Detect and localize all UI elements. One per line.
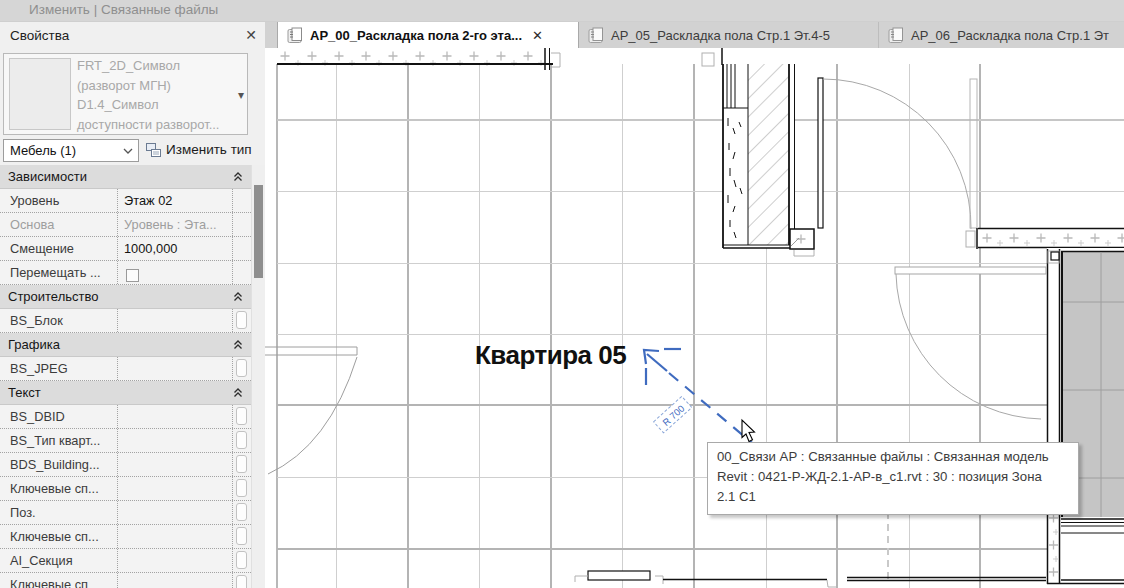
property-row: BS_JPEG: [0, 357, 251, 381]
property-label: AI_Секция: [0, 549, 117, 572]
edit-type-icon: [145, 142, 162, 158]
view-tab-label: АР_00_Раскладка пола 2-го эта...: [310, 28, 522, 43]
type-preview-image: [9, 58, 71, 130]
property-label: BS_DBID: [0, 405, 117, 428]
view-tab[interactable]: АР_06_Раскладка пола Стр.1 Эт: [879, 22, 1124, 48]
section-header[interactable]: Текст: [0, 381, 251, 405]
property-row: BS_DBID: [0, 405, 251, 429]
property-value[interactable]: [117, 357, 232, 380]
property-assoc-cell: [232, 237, 251, 260]
property-label: Ключевые сп...: [0, 525, 117, 548]
collapse-icon[interactable]: [233, 172, 243, 182]
collapse-icon[interactable]: [233, 292, 243, 302]
properties-grid: Зависимости Уровень Этаж 02 Основа Урове…: [0, 165, 251, 588]
ribbon-context-label: Изменить | Связанные файлы: [29, 2, 218, 17]
property-value[interactable]: [117, 429, 232, 452]
door-bottom-left: [265, 347, 357, 474]
category-filter-combo[interactable]: Мебель (1): [3, 139, 139, 162]
type-name-line: D1.4_Символ: [77, 95, 231, 115]
property-label: BDS_Building...: [0, 453, 117, 476]
door-jamb: [966, 231, 975, 247]
door-leaf: [818, 78, 823, 228]
property-row: Смещение 1000,000: [0, 237, 251, 261]
section-label: Графика: [8, 337, 60, 352]
property-value: Уровень : Эта...: [117, 213, 232, 236]
property-label: Смещение: [0, 237, 117, 260]
section-header[interactable]: Зависимости: [0, 165, 251, 189]
property-row: AI_Секция: [0, 549, 251, 573]
property-label: BS_JPEG: [0, 357, 117, 380]
top-wall: [277, 48, 722, 70]
property-assoc-cell: [232, 429, 251, 452]
property-row: Ключевые сп...: [0, 477, 251, 501]
associate-param-button[interactable]: [236, 407, 247, 425]
property-label: BS_Тип кварт...: [0, 429, 117, 452]
property-assoc-cell: [232, 405, 251, 428]
tooltip-line: 2.1 С1: [717, 487, 1069, 507]
type-selector[interactable]: FRT_2D_Символ (разворот МГН) D1.4_Символ…: [3, 53, 248, 135]
property-assoc-cell: [232, 501, 251, 524]
associate-param-button[interactable]: [236, 359, 247, 377]
door-leaf: [895, 267, 1046, 274]
property-assoc-cell: [232, 453, 251, 476]
plan-view-icon: [588, 27, 605, 44]
property-assoc-cell: [232, 477, 251, 500]
property-label: Уровень: [0, 189, 117, 212]
property-assoc-cell: [232, 549, 251, 572]
close-icon[interactable]: ✕: [245, 27, 257, 43]
collapse-icon[interactable]: [233, 388, 243, 398]
property-assoc-cell: [232, 213, 251, 236]
right-wall-band: [978, 229, 1124, 248]
chevron-down-icon[interactable]: ▾: [238, 88, 244, 102]
property-label: Поз.: [0, 501, 117, 524]
close-icon[interactable]: ✕: [532, 28, 543, 43]
bottom-wall: [575, 571, 1046, 587]
plan-view-icon: [888, 27, 905, 44]
door-swing-arc: [823, 79, 971, 229]
property-value[interactable]: [117, 309, 232, 332]
property-row: Поз.: [0, 501, 251, 525]
property-assoc-cell: [232, 573, 251, 588]
type-name-line: доступности разворот...: [77, 115, 231, 135]
section-label: Зависимости: [8, 169, 87, 184]
radius-tag[interactable]: R 700: [654, 396, 692, 433]
room-label[interactable]: Квартира 05: [475, 340, 626, 370]
collapse-icon[interactable]: [233, 340, 243, 350]
door-swing-arc: [896, 274, 1041, 419]
properties-title-bar: Свойства ✕: [0, 22, 265, 52]
properties-panel: Свойства ✕ FRT_2D_Символ (разворот МГН) …: [0, 22, 265, 588]
associate-param-button[interactable]: [236, 431, 247, 449]
property-value: [117, 261, 232, 284]
associate-param-button[interactable]: [236, 311, 247, 329]
associate-param-button[interactable]: [236, 551, 247, 569]
property-row: Ключевые сп...: [0, 525, 251, 549]
door-swing-arc: [268, 357, 357, 474]
property-label: Ключевые сп...: [0, 477, 117, 500]
property-assoc-cell: [232, 189, 251, 212]
type-name-line: (разворот МГН): [77, 76, 231, 96]
associate-param-button[interactable]: [236, 479, 247, 497]
property-row: Перемещать ...: [0, 261, 251, 285]
section-label: Текст: [8, 385, 41, 400]
property-value[interactable]: Этаж 02: [117, 189, 232, 212]
ribbon-context-bar: Изменить | Связанные файлы: [0, 0, 1124, 22]
property-value[interactable]: 1000,000: [117, 237, 232, 260]
property-label: BS_Блок: [0, 309, 117, 332]
property-label: Ключевые сп: [0, 573, 117, 588]
view-tab[interactable]: АР_05_Раскладка пола Стр.1 Эт.4-5: [579, 22, 879, 48]
property-value[interactable]: [117, 525, 232, 548]
hatched-wall: [723, 64, 814, 256]
edit-type-label: Изменить тип: [166, 142, 252, 157]
tooltip-line: 00_Связи АР : Связанные файлы : Связанна…: [717, 447, 1069, 467]
property-value[interactable]: [117, 573, 232, 588]
type-name: FRT_2D_Символ (разворот МГН) D1.4_Символ…: [77, 56, 231, 134]
view-tab-label: АР_05_Раскладка пола Стр.1 Эт.4-5: [611, 28, 830, 43]
property-label: Перемещать ...: [0, 261, 117, 284]
category-filter-value: Мебель (1): [10, 143, 76, 158]
property-assoc-cell: [232, 261, 251, 284]
property-value[interactable]: [117, 549, 232, 572]
view-tab-active[interactable]: АР_00_Раскладка пола 2-го эта... ✕: [277, 22, 579, 48]
checkbox[interactable]: [126, 269, 139, 282]
associate-param-button[interactable]: [236, 503, 247, 521]
drawing-area[interactable]: Квартира 05 R 700 00_Связи АР : Связанны…: [265, 48, 1124, 588]
property-value[interactable]: [117, 453, 232, 476]
associate-param-button[interactable]: [236, 527, 247, 545]
property-row: BS_Тип кварт...: [0, 429, 251, 453]
section-label: Строительство: [8, 289, 98, 304]
property-value[interactable]: [117, 501, 232, 524]
property-row: BDS_Building...: [0, 453, 251, 477]
property-label: Основа: [0, 213, 117, 236]
property-row: BS_Блок: [0, 309, 251, 333]
property-row: Ключевые сп: [0, 573, 251, 588]
chevron-down-icon: [123, 148, 133, 154]
property-assoc-cell: [232, 309, 251, 332]
door-top: [818, 78, 977, 249]
property-assoc-cell: [232, 525, 251, 548]
property-row: Основа Уровень : Эта...: [0, 213, 251, 237]
properties-title: Свойства: [10, 28, 69, 43]
property-value[interactable]: [117, 405, 232, 428]
cursor-icon: [742, 420, 755, 442]
selection-tooltip: 00_Связи АР : Связанные файлы : Связанна…: [707, 442, 1079, 515]
properties-scrollbar[interactable]: [251, 165, 265, 588]
section-header[interactable]: Графика: [0, 333, 251, 357]
view-tabs: АР_00_Раскладка пола 2-го эта... ✕ АР_05…: [265, 22, 1124, 48]
associate-param-button[interactable]: [236, 455, 247, 473]
scrollbar-thumb[interactable]: [254, 185, 263, 278]
view-tab-label: АР_06_Раскладка пола Стр.1 Эт: [911, 28, 1109, 43]
property-row: Уровень Этаж 02: [0, 189, 251, 213]
property-assoc-cell: [232, 357, 251, 380]
tooltip-line: Revit : 0421-Р-ЖД-2.1-АР-в_с1.rvt : 30 :…: [717, 467, 1069, 487]
type-name-line: FRT_2D_Символ: [77, 56, 231, 76]
section-header[interactable]: Строительство: [0, 285, 251, 309]
property-value[interactable]: [117, 477, 232, 500]
plan-view-icon: [287, 27, 304, 44]
associate-param-button[interactable]: [236, 575, 247, 588]
door-right-room: [895, 267, 1046, 419]
